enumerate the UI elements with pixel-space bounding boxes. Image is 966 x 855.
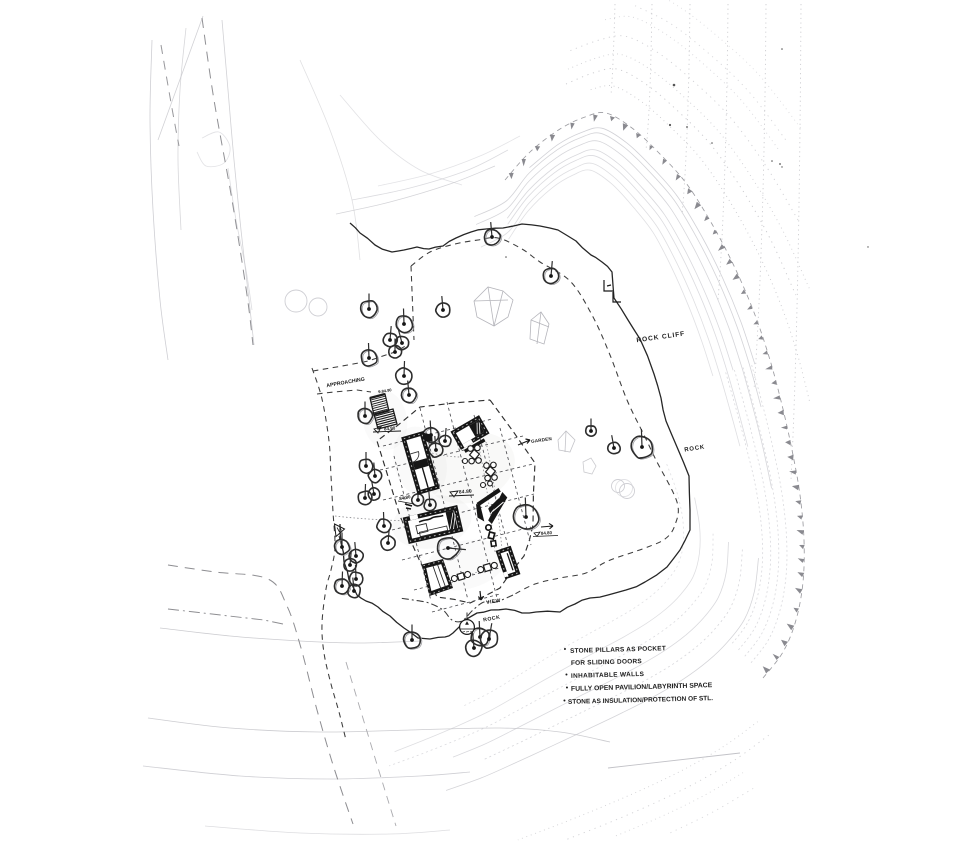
svg-text:84.90: 84.90 — [384, 425, 396, 431]
svg-text:84.80: 84.80 — [459, 489, 473, 496]
svg-text:84.80: 84.80 — [541, 530, 553, 536]
